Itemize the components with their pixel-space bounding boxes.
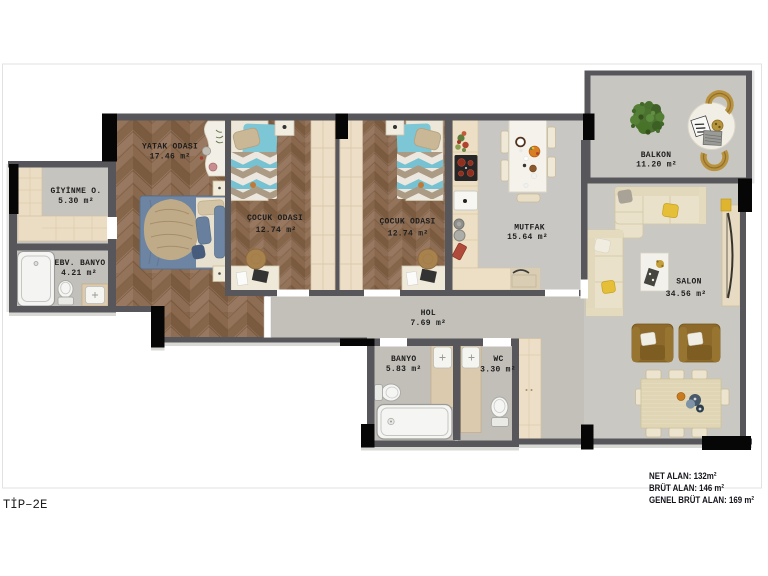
svg-text:EBV. BANYO: EBV. BANYO bbox=[54, 259, 105, 268]
svg-text:HOL: HOL bbox=[421, 309, 436, 318]
svg-text:ÇOCUK ODASI: ÇOCUK ODASI bbox=[379, 218, 435, 227]
svg-text:7.69 m²: 7.69 m² bbox=[410, 319, 446, 328]
svg-text:5.30 m²: 5.30 m² bbox=[58, 197, 94, 206]
svg-text:NET ALAN: 132m²: NET ALAN: 132m² bbox=[649, 471, 717, 481]
svg-text:15.64 m²: 15.64 m² bbox=[507, 233, 548, 242]
svg-text:4.21 m²: 4.21 m² bbox=[61, 269, 97, 278]
svg-text:YATAK ODASI: YATAK ODASI bbox=[142, 143, 198, 152]
svg-text:GENEL BRÜT ALAN: 169 m²: GENEL BRÜT ALAN: 169 m² bbox=[649, 495, 754, 505]
svg-text:BRÜT ALAN: 146 m²: BRÜT ALAN: 146 m² bbox=[649, 483, 724, 493]
svg-text:5.83 m²: 5.83 m² bbox=[386, 365, 422, 374]
svg-text:SALON: SALON bbox=[676, 278, 702, 287]
svg-text:12.74 m²: 12.74 m² bbox=[388, 230, 429, 239]
svg-text:34.56 m²: 34.56 m² bbox=[666, 290, 707, 299]
svg-text:BANYO: BANYO bbox=[391, 355, 417, 364]
svg-text:BALKON: BALKON bbox=[641, 151, 672, 160]
svg-text:17.46 m²: 17.46 m² bbox=[150, 153, 191, 162]
svg-text:WC: WC bbox=[493, 355, 503, 364]
svg-text:TİP–2E: TİP–2E bbox=[3, 497, 48, 512]
svg-text:GİYİNME O.: GİYİNME O. bbox=[50, 187, 101, 196]
svg-text:12.74 m²: 12.74 m² bbox=[256, 226, 297, 235]
svg-text:11.20 m²: 11.20 m² bbox=[636, 161, 677, 170]
svg-text:MUTFAK: MUTFAK bbox=[514, 224, 545, 233]
svg-text:3.30 m²: 3.30 m² bbox=[480, 366, 516, 375]
svg-text:ÇOCUK ODASI: ÇOCUK ODASI bbox=[247, 214, 303, 223]
